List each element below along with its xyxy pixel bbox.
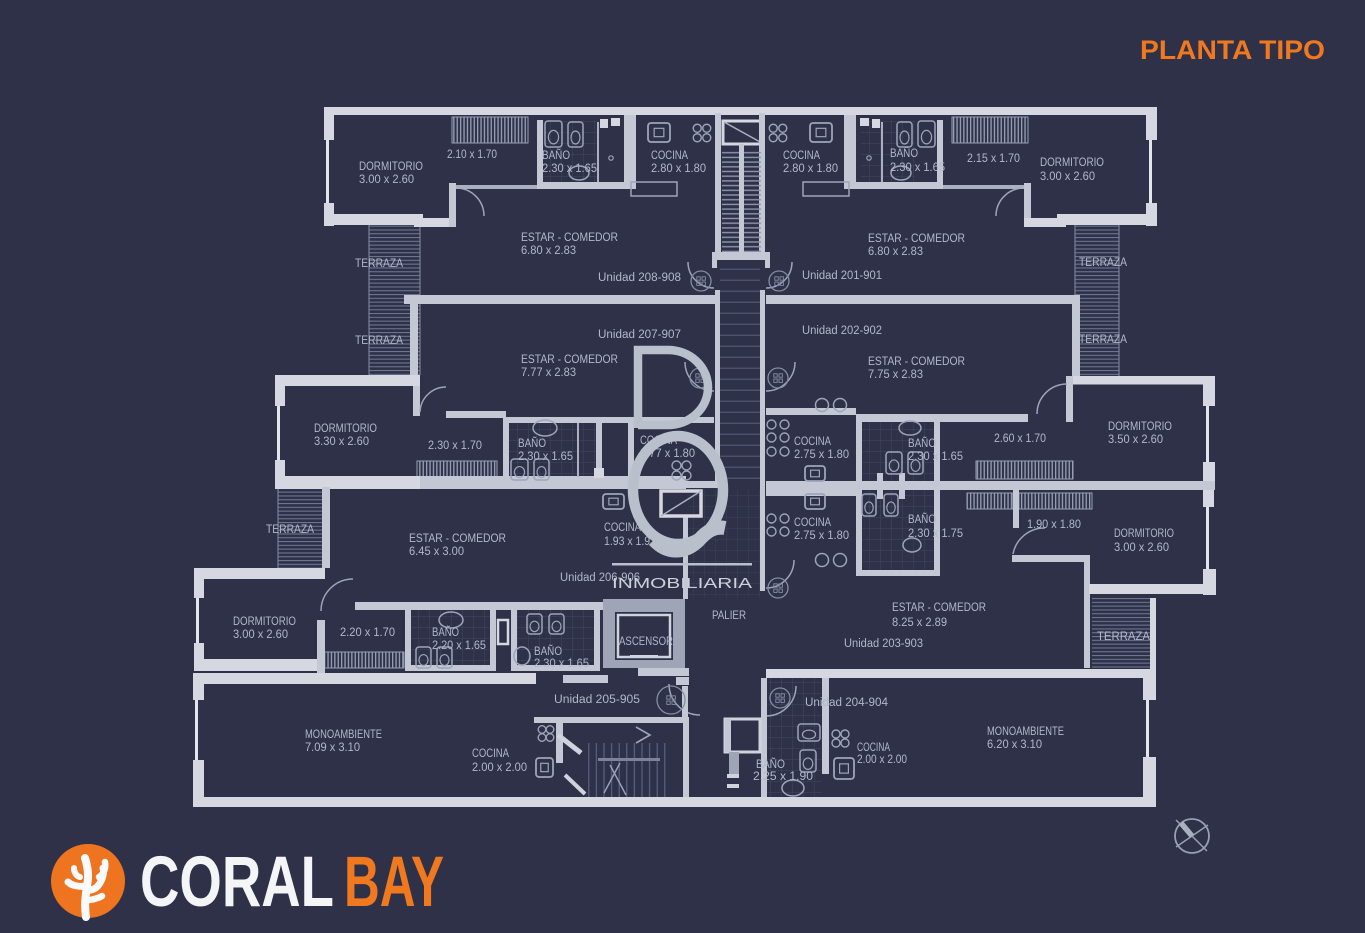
svg-text:ASCENSOR: ASCENSOR xyxy=(619,636,673,648)
svg-text:2.30 x 1.65: 2.30 x 1.65 xyxy=(534,658,589,670)
svg-text:PALIER: PALIER xyxy=(712,610,746,622)
svg-text:TERRAZA: TERRAZA xyxy=(1079,334,1127,346)
svg-text:BAÑO: BAÑO xyxy=(908,437,936,450)
svg-text:COCINA: COCINA xyxy=(651,150,688,162)
svg-text:ESTAR - COMEDOR: ESTAR - COMEDOR xyxy=(521,232,618,244)
svg-text:6.80 x 2.83: 6.80 x 2.83 xyxy=(521,245,576,257)
svg-text:3.00 x 2.60: 3.00 x 2.60 xyxy=(1114,542,1169,554)
svg-text:COCINA: COCINA xyxy=(472,748,509,760)
svg-text:ESTAR - COMEDOR: ESTAR - COMEDOR xyxy=(892,602,986,614)
svg-text:CORAL: CORAL xyxy=(140,843,334,922)
svg-text:6.45 x 3.00: 6.45 x 3.00 xyxy=(409,546,464,558)
svg-text:2.30 x 1.65: 2.30 x 1.65 xyxy=(518,451,573,463)
svg-text:3.50 x 2.60: 3.50 x 2.60 xyxy=(1108,434,1163,446)
svg-text:7.77 x 2.83: 7.77 x 2.83 xyxy=(521,367,576,379)
svg-text:3.00 x 2.60: 3.00 x 2.60 xyxy=(233,629,288,641)
svg-text:2.25 x 1.90: 2.25 x 1.90 xyxy=(753,771,813,783)
svg-text:Unidad 205-905: Unidad 205-905 xyxy=(554,694,640,706)
svg-text:DORMITORIO: DORMITORIO xyxy=(359,161,423,173)
svg-text:3.00 x 2.60: 3.00 x 2.60 xyxy=(1040,171,1095,183)
svg-text:DORMITORIO: DORMITORIO xyxy=(233,616,296,628)
svg-text:BAY: BAY xyxy=(344,843,444,922)
svg-text:COCINA: COCINA xyxy=(794,436,831,448)
svg-text:2.80 x 1.80: 2.80 x 1.80 xyxy=(783,163,838,175)
svg-text:6.80 x 2.83: 6.80 x 2.83 xyxy=(868,246,923,258)
svg-text:2.15 x 1.70: 2.15 x 1.70 xyxy=(967,153,1020,165)
svg-text:2.30 x 1.65: 2.30 x 1.65 xyxy=(890,162,945,174)
svg-text:BAÑO: BAÑO xyxy=(432,626,459,639)
svg-text:BAÑO: BAÑO xyxy=(542,149,570,162)
svg-text:BAÑO: BAÑO xyxy=(890,147,918,160)
svg-text:TERRAZA: TERRAZA xyxy=(1097,631,1150,643)
svg-text:2.80 x 1.80: 2.80 x 1.80 xyxy=(651,163,706,175)
svg-text:DORMITORIO: DORMITORIO xyxy=(314,423,377,435)
svg-text:2.75 x 1.80: 2.75 x 1.80 xyxy=(794,530,849,542)
svg-text:DORMITORIO: DORMITORIO xyxy=(1108,421,1172,433)
svg-text:6.20 x 3.10: 6.20 x 3.10 xyxy=(987,739,1042,751)
svg-text:2.20 x 1.65: 2.20 x 1.65 xyxy=(432,640,486,652)
svg-text:ESTAR - COMEDOR: ESTAR - COMEDOR xyxy=(868,356,965,368)
svg-text:3.30 x 2.60: 3.30 x 2.60 xyxy=(314,436,369,448)
svg-text:DORMITORIO: DORMITORIO xyxy=(1114,528,1174,540)
svg-text:BAÑO: BAÑO xyxy=(534,645,562,658)
svg-text:COCINA: COCINA xyxy=(794,517,831,529)
svg-text:2.30 x 1.70: 2.30 x 1.70 xyxy=(428,440,482,452)
svg-text:MONOAMBIENTE: MONOAMBIENTE xyxy=(305,729,382,741)
svg-text:2.00 x 2.00: 2.00 x 2.00 xyxy=(857,754,907,766)
svg-text:INMOBILIARIA: INMOBILIARIA xyxy=(612,575,752,592)
svg-text:DORMITORIO: DORMITORIO xyxy=(1040,157,1104,169)
svg-text:Unidad 208-908: Unidad 208-908 xyxy=(598,272,681,284)
svg-text:COCINA: COCINA xyxy=(604,522,641,534)
svg-text:ESTAR - COMEDOR: ESTAR - COMEDOR xyxy=(868,233,965,245)
svg-text:Unidad 204-904: Unidad 204-904 xyxy=(805,697,889,709)
svg-text:BAÑO: BAÑO xyxy=(908,513,936,526)
svg-text:Unidad 201-901: Unidad 201-901 xyxy=(802,270,882,282)
svg-text:3.00 x 2.60: 3.00 x 2.60 xyxy=(359,174,414,186)
svg-text:1.90 x 1.80: 1.90 x 1.80 xyxy=(1027,519,1081,531)
svg-text:ESTAR - COMEDOR: ESTAR - COMEDOR xyxy=(409,533,506,545)
svg-text:2.30 x 1.65: 2.30 x 1.65 xyxy=(908,451,963,463)
svg-text:2.75 x 1.80: 2.75 x 1.80 xyxy=(794,449,849,461)
svg-text:MONOAMBIENTE: MONOAMBIENTE xyxy=(987,726,1064,738)
svg-text:Unidad 203-903: Unidad 203-903 xyxy=(844,638,923,650)
svg-text:Unidad 202-902: Unidad 202-902 xyxy=(802,325,882,337)
svg-text:2.10 x 1.70: 2.10 x 1.70 xyxy=(447,149,497,161)
svg-text:8.25 x 2.89: 8.25 x 2.89 xyxy=(892,617,947,629)
svg-text:7.75 x 2.83: 7.75 x 2.83 xyxy=(868,369,923,381)
svg-text:ESTAR - COMEDOR: ESTAR - COMEDOR xyxy=(521,354,618,366)
svg-text:2.30 x 1.65: 2.30 x 1.65 xyxy=(542,163,597,175)
svg-text:BAÑO: BAÑO xyxy=(756,758,785,771)
svg-text:2.20 x 1.70: 2.20 x 1.70 xyxy=(340,627,395,639)
svg-text:TERRAZA: TERRAZA xyxy=(355,335,403,347)
svg-text:Unidad 207-907: Unidad 207-907 xyxy=(598,329,681,341)
svg-text:BAÑO: BAÑO xyxy=(518,437,546,450)
svg-text:2.00 x 2.00: 2.00 x 2.00 xyxy=(472,762,527,774)
svg-text:TERRAZA: TERRAZA xyxy=(1079,257,1127,269)
svg-text:TERRAZA: TERRAZA xyxy=(266,524,314,536)
svg-text:2.60 x 1.70: 2.60 x 1.70 xyxy=(994,433,1046,445)
svg-text:PLANTA TIPO: PLANTA TIPO xyxy=(1140,35,1325,65)
svg-text:TERRAZA: TERRAZA xyxy=(355,258,403,270)
svg-text:COCINA: COCINA xyxy=(783,150,820,162)
svg-text:2.30 x 1.75: 2.30 x 1.75 xyxy=(908,528,963,540)
svg-text:7.09 x 3.10: 7.09 x 3.10 xyxy=(305,742,360,754)
svg-text:COCINA: COCINA xyxy=(857,742,890,754)
